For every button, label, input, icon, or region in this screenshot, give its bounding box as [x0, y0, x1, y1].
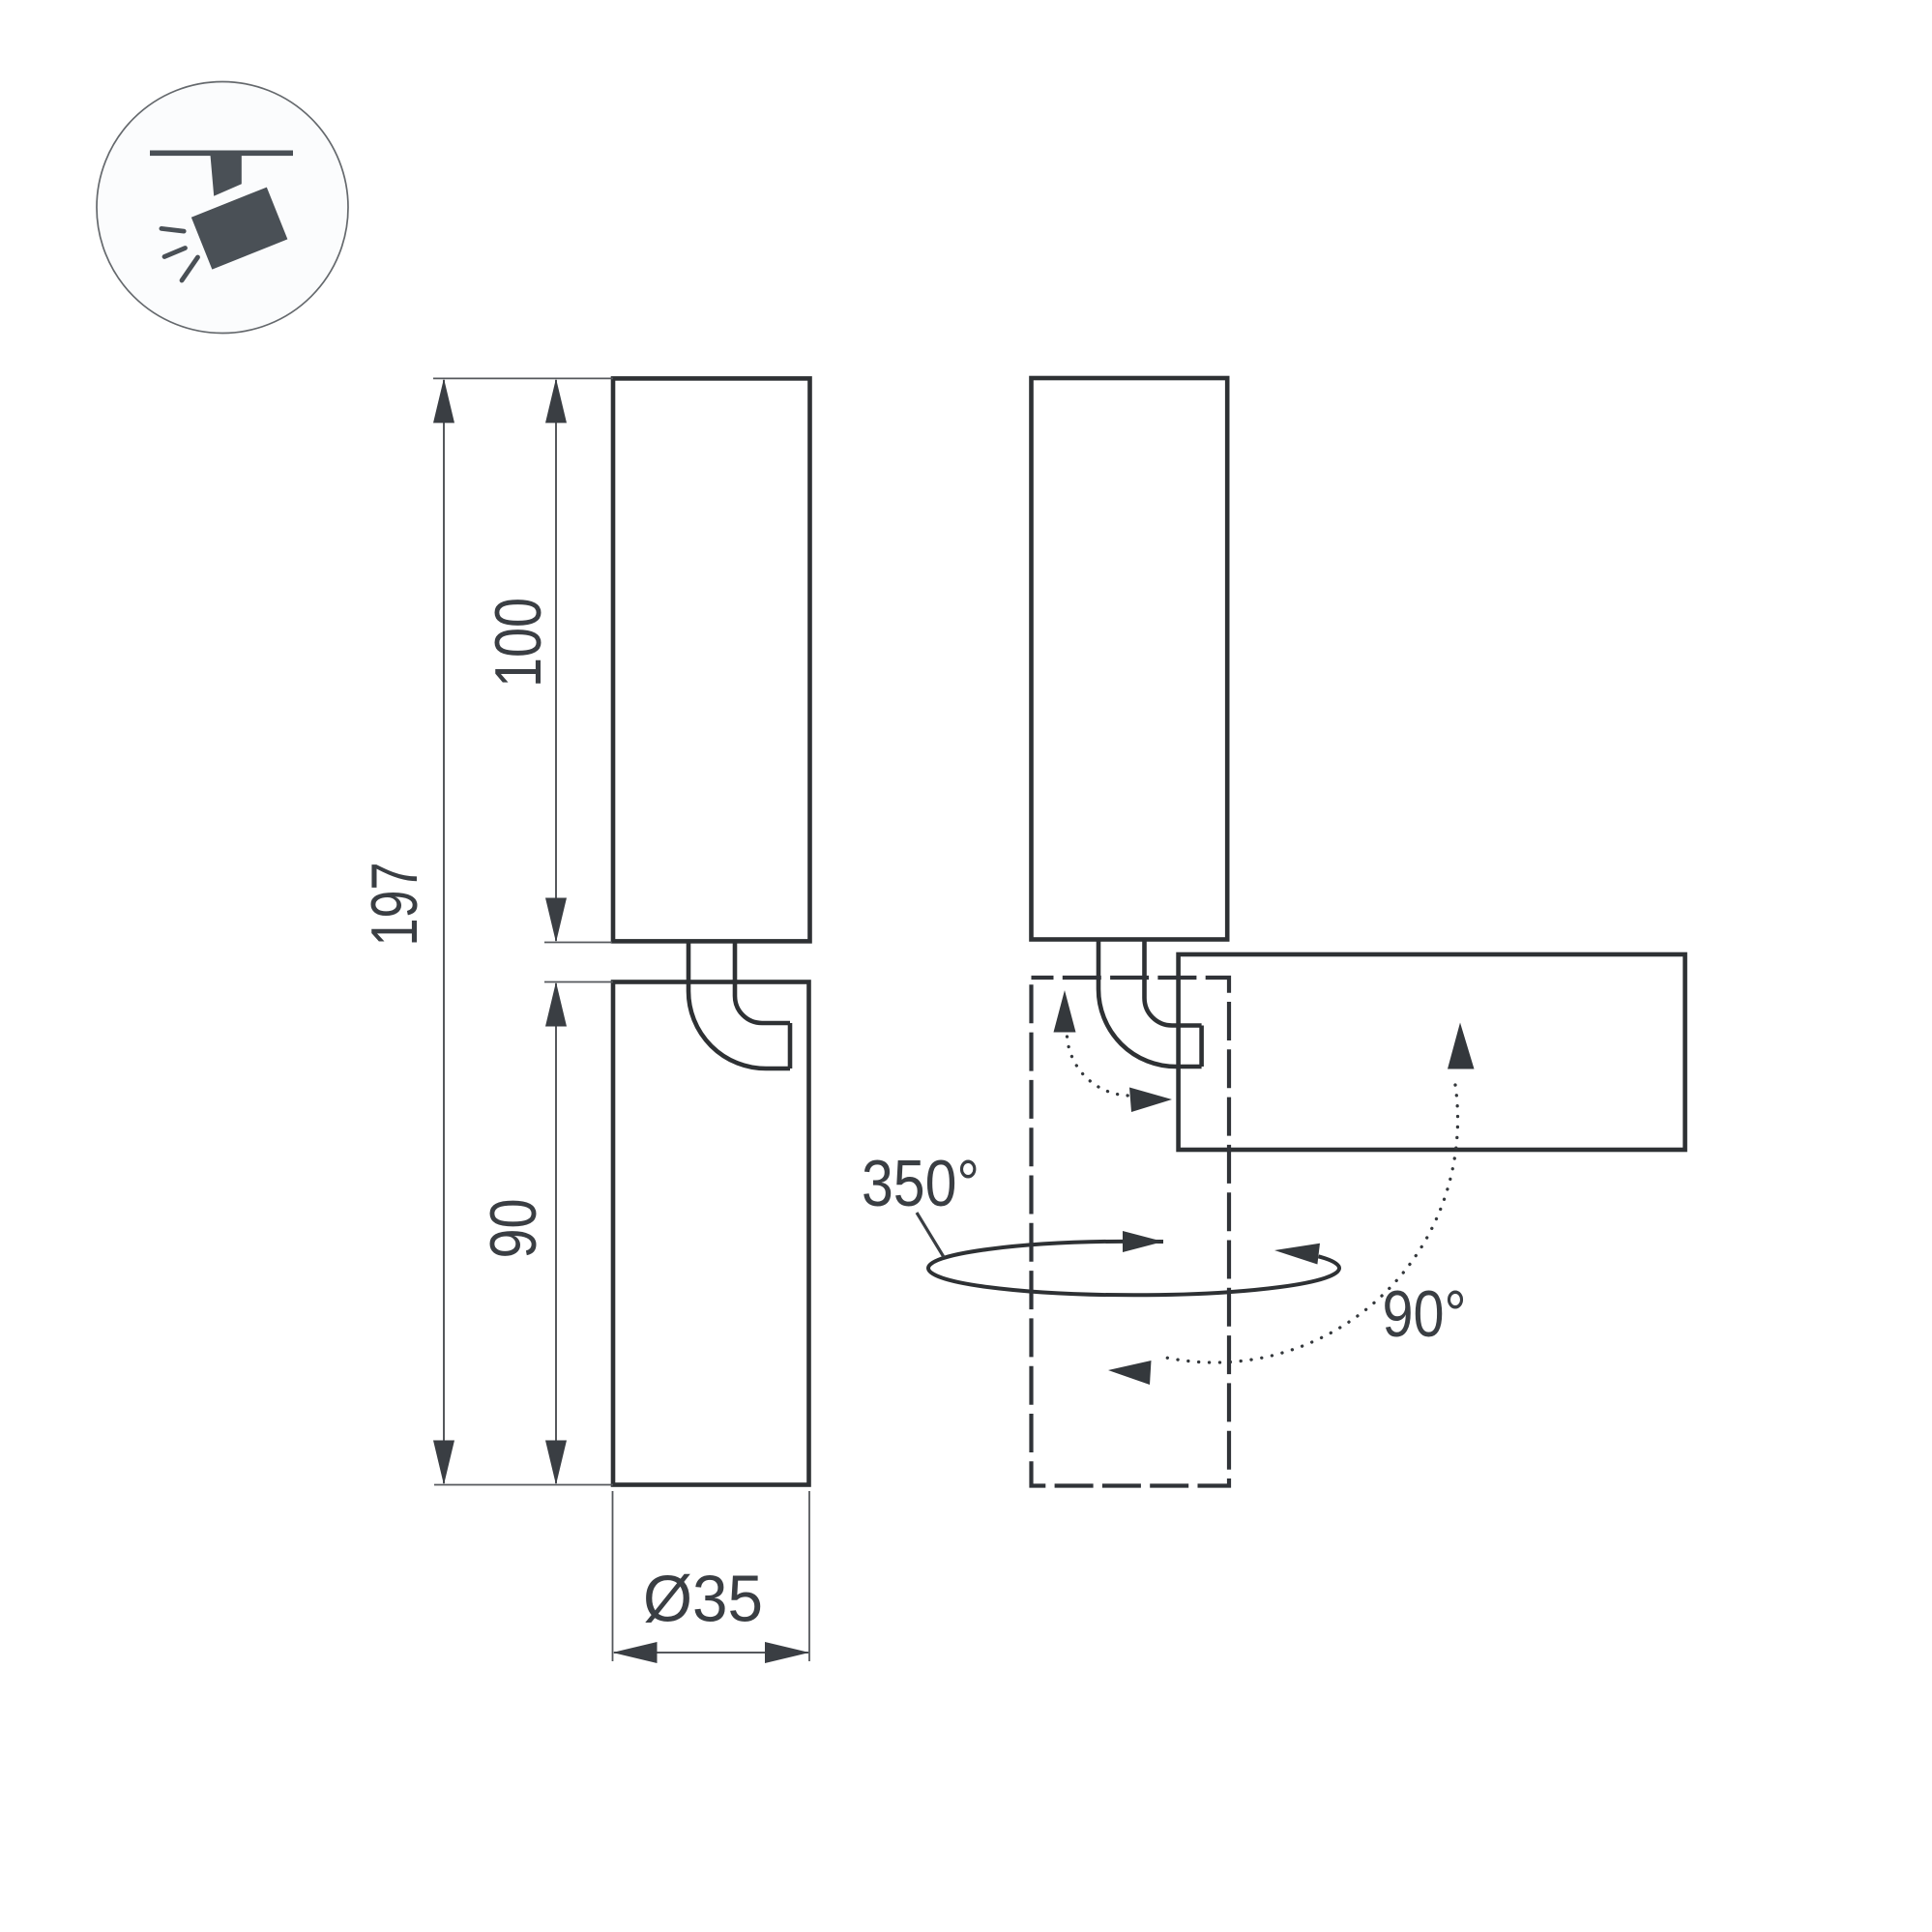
- svg-text:197: 197: [358, 863, 431, 947]
- svg-text:90: 90: [477, 1199, 550, 1259]
- svg-text:Ø35: Ø35: [643, 1562, 763, 1635]
- svg-text:90°: 90°: [1383, 1277, 1467, 1351]
- svg-text:100: 100: [482, 598, 555, 688]
- svg-text:350°: 350°: [862, 1147, 980, 1220]
